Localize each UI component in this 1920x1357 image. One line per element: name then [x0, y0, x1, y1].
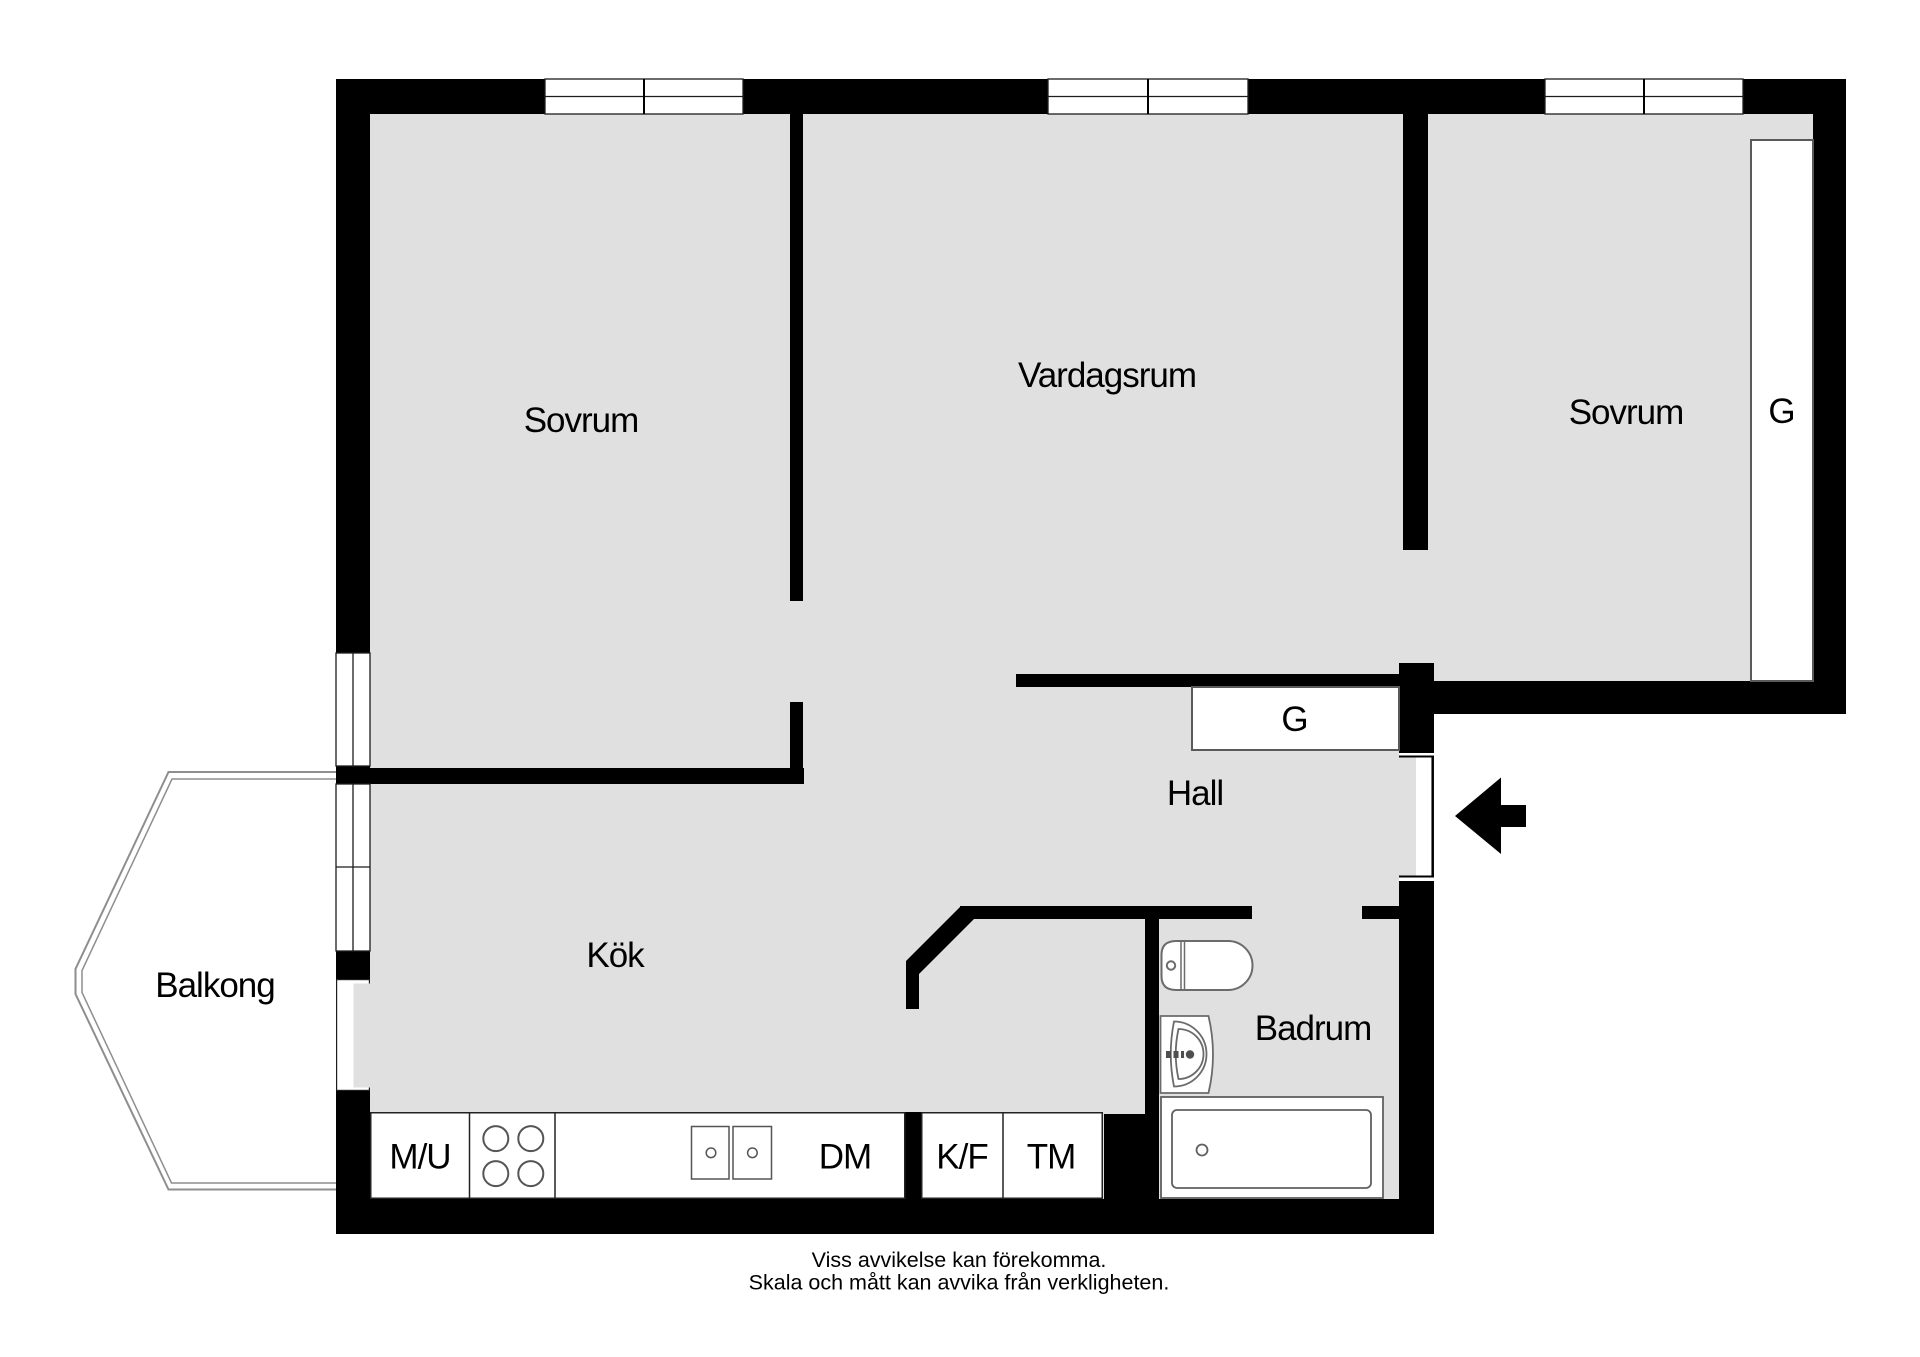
- svg-text:K/F: K/F: [936, 1138, 987, 1177]
- svg-text:Viss avvikelse kan förekomma.: Viss avvikelse kan förekomma.: [812, 1248, 1107, 1272]
- svg-text:Hall: Hall: [1167, 774, 1223, 813]
- svg-text:Badrum: Badrum: [1255, 1009, 1372, 1048]
- svg-text:Skala och mått kan avvika från: Skala och mått kan avvika från verklighe…: [749, 1271, 1170, 1295]
- svg-text:Balkong: Balkong: [155, 966, 274, 1005]
- svg-text:Sovrum: Sovrum: [1569, 393, 1684, 432]
- svg-text:G: G: [1281, 700, 1308, 739]
- svg-text:Sovrum: Sovrum: [524, 401, 639, 440]
- svg-text:G: G: [1768, 392, 1795, 431]
- svg-text:Vardagsrum: Vardagsrum: [1018, 356, 1196, 395]
- svg-text:M/U: M/U: [389, 1138, 450, 1177]
- svg-text:TM: TM: [1027, 1138, 1076, 1177]
- svg-text:Kök: Kök: [586, 936, 645, 975]
- svg-text:DM: DM: [819, 1138, 871, 1177]
